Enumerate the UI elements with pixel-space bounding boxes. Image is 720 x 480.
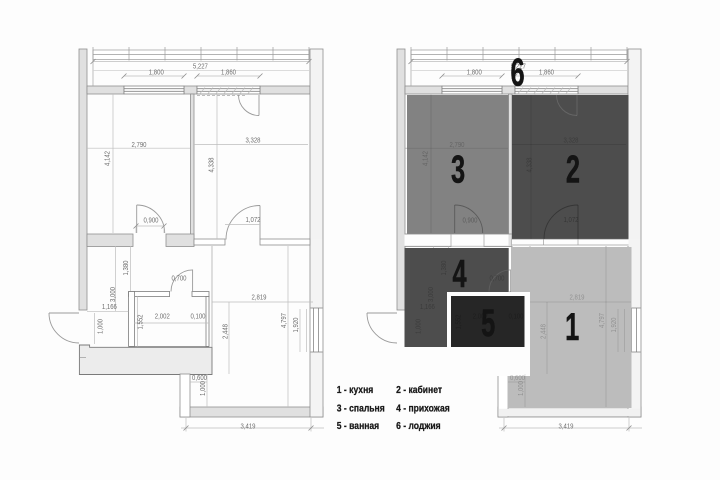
svg-text:3 - спальня: 3 - спальня: [337, 402, 385, 414]
svg-text:1,920: 1,920: [611, 317, 618, 332]
svg-text:1,000: 1,000: [518, 381, 525, 396]
svg-text:0,100: 0,100: [509, 314, 524, 321]
svg-text:0,600: 0,600: [510, 375, 525, 382]
svg-text:3,328: 3,328: [564, 138, 579, 145]
svg-text:2: 2: [566, 147, 580, 191]
svg-text:0,900: 0,900: [463, 218, 478, 225]
svg-text:6 - лоджия: 6 - лоджия: [396, 419, 441, 431]
svg-text:4,338: 4,338: [527, 157, 534, 172]
svg-text:4,797: 4,797: [599, 313, 606, 328]
svg-text:1,166: 1,166: [420, 304, 435, 311]
svg-text:6: 6: [510, 50, 524, 94]
svg-text:1,072: 1,072: [564, 217, 579, 224]
svg-text:5 - ванная: 5 - ванная: [337, 419, 379, 431]
svg-text:5: 5: [481, 301, 495, 345]
svg-text:1,380: 1,380: [441, 260, 448, 275]
svg-text:3,000: 3,000: [428, 287, 435, 302]
svg-text:1: 1: [565, 305, 579, 349]
svg-text:2,819: 2,819: [570, 295, 585, 302]
svg-text:1,552: 1,552: [456, 314, 463, 329]
svg-text:2 - кабинет: 2 - кабинет: [396, 383, 442, 395]
svg-text:2,448: 2,448: [541, 324, 548, 339]
svg-text:1 - кухня: 1 - кухня: [337, 383, 373, 395]
svg-text:4 - прихожая: 4 - прихожая: [396, 402, 450, 414]
svg-text:3: 3: [451, 147, 465, 191]
svg-text:1,000: 1,000: [416, 319, 423, 334]
svg-text:4,142: 4,142: [423, 151, 430, 166]
svg-text:4: 4: [452, 252, 466, 296]
